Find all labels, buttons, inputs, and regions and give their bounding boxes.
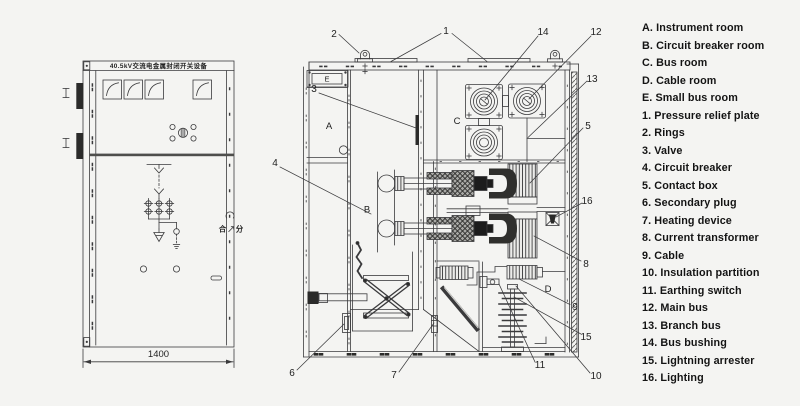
callout-16: 16	[581, 196, 593, 207]
legend-item: A. Instrument room	[642, 20, 800, 38]
dimension-label: 1400	[148, 349, 169, 360]
callout-10: 10	[590, 371, 602, 382]
callout-7: 7	[391, 370, 397, 381]
door-hinges	[63, 83, 83, 159]
section-view-drawing: E A B C D 2 1 14 12 13 3 4 5 16 8 9 15 1…	[270, 10, 670, 406]
callout-12: 12	[590, 27, 602, 38]
legend-item: 9. Cable	[642, 248, 800, 266]
switchgear-diagram: 40.5kV交流电金属封闭开关设备 合 分 1400	[0, 0, 800, 406]
valve	[416, 115, 420, 145]
callout-2: 2	[331, 29, 337, 40]
mimic-diagram	[140, 165, 179, 273]
legend-item: 4. Circuit breaker	[642, 160, 800, 178]
legend-item: B. Circuit breaker room	[642, 38, 800, 56]
callout-9: 9	[572, 302, 578, 313]
legend-panel: A. Instrument room B. Circuit breaker ro…	[642, 20, 800, 388]
bus-bushing-lower	[466, 126, 503, 160]
legend-item: 2. Rings	[642, 125, 800, 143]
legend-item: 15. Lightning arrester	[642, 353, 800, 371]
callout-8: 8	[583, 259, 589, 270]
bus-room	[466, 84, 566, 162]
legend-item: 7. Heating device	[642, 213, 800, 231]
lighting-fixture	[546, 213, 559, 226]
room-label-A: A	[326, 121, 333, 132]
circuit-breaker-poles	[378, 169, 518, 253]
callout-6: 6	[289, 368, 295, 379]
legend-item: E. Small bus room	[642, 90, 800, 108]
handle-open-label: 分	[236, 225, 244, 234]
room-label-D: D	[545, 284, 552, 295]
cable-termination	[507, 266, 537, 280]
callout-3: 3	[311, 84, 317, 95]
room-label-B: B	[364, 205, 370, 216]
legend-item: 11. Earthing switch	[642, 283, 800, 301]
legend-item: 10. Insulation partition	[642, 265, 800, 283]
handle-close-label: 合	[218, 225, 227, 234]
legend-item: 3. Valve	[642, 143, 800, 161]
legend-item: 14. Bus bushing	[642, 335, 800, 353]
lifting-ring-right	[548, 50, 563, 68]
pressure-relief-plate-right	[468, 59, 530, 63]
legend-item: 6. Secondary plug	[642, 195, 800, 213]
cable	[443, 289, 477, 330]
cabinet-frame	[83, 61, 234, 347]
legend-item: C. Bus room	[642, 55, 800, 73]
callout-5: 5	[585, 121, 591, 132]
callout-14: 14	[537, 27, 549, 38]
callout-11: 11	[535, 360, 546, 371]
callout-1: 1	[443, 26, 449, 37]
callout-4: 4	[272, 158, 278, 169]
legend-item: D. Cable room	[642, 73, 800, 91]
room-label-C: C	[454, 116, 461, 127]
racking-mechanism	[308, 242, 413, 332]
callout-15: 15	[580, 332, 592, 343]
legend-item: 12. Main bus	[642, 300, 800, 318]
room-label-E: E	[324, 75, 329, 84]
handle-slot	[211, 276, 222, 280]
legend-item: 5. Contact box	[642, 178, 800, 196]
cable-room	[436, 266, 565, 352]
legend-item: 16. Lighting	[642, 370, 800, 388]
indicator-lamps	[170, 124, 196, 141]
door-handle-area	[211, 212, 234, 280]
legend-item: 8. Current transformer	[642, 230, 800, 248]
callout-13: 13	[586, 74, 598, 85]
legend-item: 13. Branch bus	[642, 318, 800, 336]
cabinet-title: 40.5kV交流电金属封闭开关设备	[110, 61, 208, 70]
lightning-arrester	[499, 285, 526, 352]
legend-item: 1. Pressure relief plate	[642, 108, 800, 126]
front-view-drawing: 40.5kV交流电金属封闭开关设备 合 分 1400	[55, 35, 285, 380]
panel-meters	[103, 80, 212, 99]
